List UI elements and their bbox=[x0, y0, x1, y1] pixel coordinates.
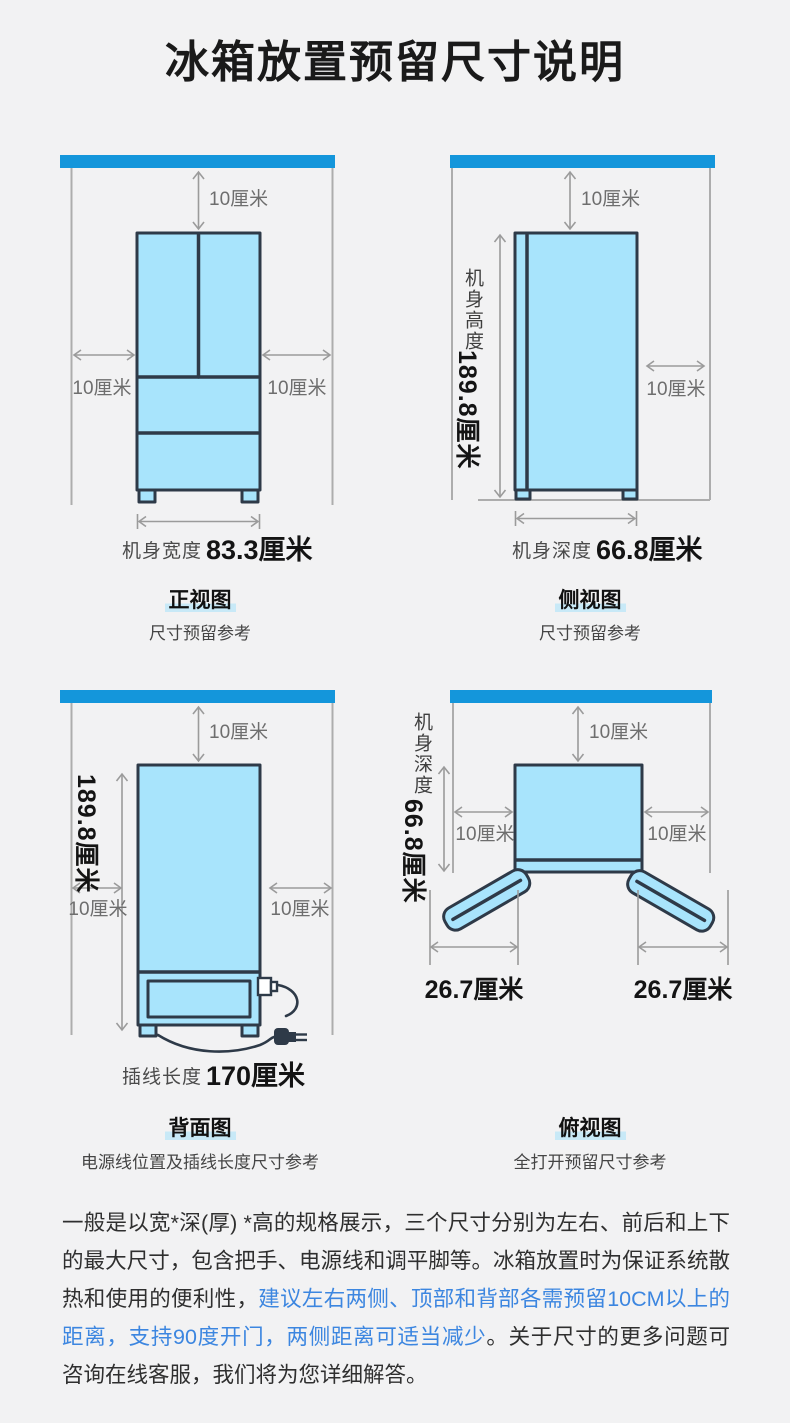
fridge-foot bbox=[139, 490, 155, 502]
top-clearance-label: 10厘米 bbox=[209, 721, 268, 743]
fridge-foot bbox=[242, 490, 258, 502]
top-clearance-label: 10厘米 bbox=[581, 188, 640, 210]
fridge-foot bbox=[516, 490, 530, 499]
depth-label: 机身深度 bbox=[512, 540, 592, 562]
door-open-left bbox=[440, 866, 533, 934]
left-clearance-label: 10厘米 bbox=[455, 823, 514, 845]
side-height-label: 机身高度 bbox=[459, 268, 486, 352]
top-view-diagram: 10厘米 10厘米 10厘米 26.7厘米 26.7厘米 bbox=[390, 683, 750, 1103]
ceiling-bar bbox=[450, 155, 715, 168]
depth-dimension-arrow bbox=[516, 511, 637, 526]
power-plug bbox=[274, 1028, 307, 1045]
top-clearance-label: 10厘米 bbox=[209, 188, 268, 210]
fridge-back bbox=[138, 765, 260, 1036]
ceiling-bar bbox=[60, 155, 335, 168]
right-clearance-arrow bbox=[645, 807, 708, 817]
ceiling-bar bbox=[60, 690, 335, 703]
top-clearance-arrow bbox=[193, 707, 204, 761]
left-clearance-arrow bbox=[455, 807, 512, 817]
fridge-front bbox=[137, 233, 260, 502]
left-clearance-label: 10厘米 bbox=[72, 377, 131, 399]
side-view-subtitle: 尺寸预留参考 bbox=[410, 619, 770, 644]
top-view-title: 俯视图 bbox=[410, 1112, 770, 1142]
right-clearance-label: 10厘米 bbox=[646, 378, 705, 400]
back-height-value: 189.8厘米 bbox=[70, 774, 106, 894]
top-clearance-arrow bbox=[193, 172, 204, 229]
width-value: 83.3厘米 bbox=[206, 535, 313, 565]
top-clearance-label: 10厘米 bbox=[589, 721, 648, 743]
depth-dimension-arrow bbox=[439, 767, 450, 871]
fridge-top bbox=[515, 765, 642, 879]
top-clearance-arrow bbox=[573, 707, 584, 761]
top-view-subtitle: 全打开预留尺寸参考 bbox=[410, 1148, 770, 1173]
cord-length-value: 170厘米 bbox=[206, 1061, 305, 1091]
back-view-title: 背面图 bbox=[20, 1112, 380, 1142]
front-view-diagram: 10厘米 10厘米 10厘米 机身宽度 83.3厘米 bbox=[40, 148, 360, 568]
compressor-panel bbox=[148, 981, 250, 1017]
fridge-foot bbox=[140, 1025, 156, 1036]
top-depth-label: 机身深度 bbox=[408, 712, 435, 796]
depth-value: 66.8厘米 bbox=[596, 535, 703, 565]
fridge-side bbox=[515, 233, 637, 499]
top-depth-value: 66.8厘米 bbox=[397, 799, 433, 904]
ceiling-bar bbox=[450, 690, 712, 703]
left-clearance-label: 10厘米 bbox=[68, 898, 127, 920]
side-height-value: 189.8厘米 bbox=[451, 350, 487, 470]
right-clearance-label: 10厘米 bbox=[270, 898, 329, 920]
fridge-foot bbox=[623, 490, 637, 499]
door-swing-right-value: 26.7厘米 bbox=[634, 976, 734, 1004]
infographic-page: 冰箱放置预留尺寸说明 10厘米 10厘米 10厘米 bbox=[0, 0, 790, 1423]
width-label: 机身宽度 bbox=[122, 540, 202, 562]
right-clearance-label: 10厘米 bbox=[267, 377, 326, 399]
placement-note-paragraph: 一般是以宽*深(厚) *高的规格展示，三个尺寸分别为左右、前后和上下的最大尺寸，… bbox=[62, 1204, 730, 1394]
right-clearance-label: 10厘米 bbox=[647, 823, 706, 845]
page-title: 冰箱放置预留尺寸说明 bbox=[0, 26, 790, 90]
fridge-foot bbox=[242, 1025, 258, 1036]
right-clearance-arrow bbox=[270, 883, 331, 893]
side-view-title: 侧视图 bbox=[410, 584, 770, 614]
cord-length-label: 插线长度 bbox=[122, 1066, 202, 1088]
width-dimension-arrow bbox=[138, 514, 260, 529]
right-clearance-arrow bbox=[647, 361, 704, 371]
door-swing-left-value: 26.7厘米 bbox=[425, 976, 525, 1004]
top-clearance-arrow bbox=[565, 172, 576, 229]
back-view-subtitle: 电源线位置及插线长度尺寸参考 bbox=[20, 1148, 380, 1173]
front-view-title: 正视图 bbox=[20, 584, 380, 614]
left-clearance-arrow bbox=[74, 350, 134, 360]
front-view-subtitle: 尺寸预留参考 bbox=[20, 619, 380, 644]
height-dimension-arrow bbox=[495, 235, 506, 497]
right-clearance-arrow bbox=[263, 350, 330, 360]
